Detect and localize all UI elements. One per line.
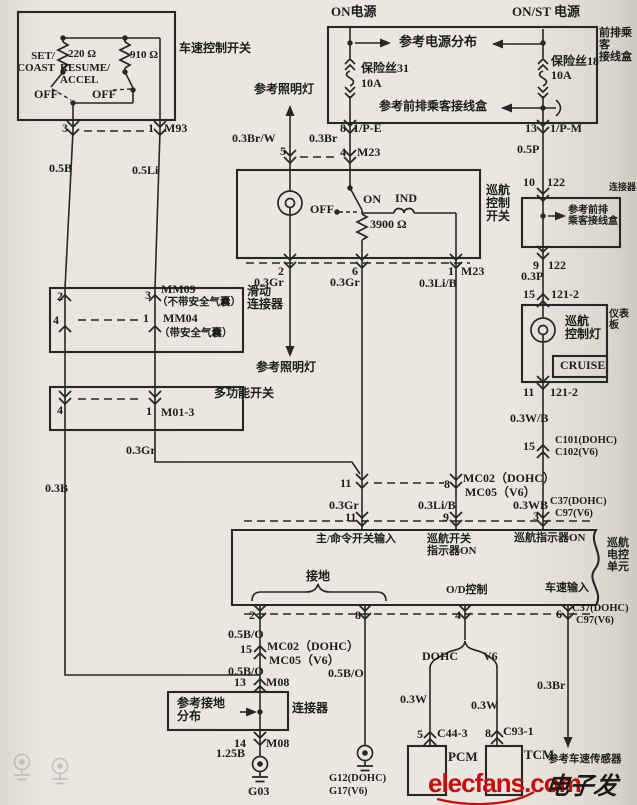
indicator-coil-icon bbox=[394, 209, 414, 214]
arrow-left-icon bbox=[501, 104, 512, 113]
pin-4: 4 bbox=[53, 314, 59, 327]
pin-1: 1 bbox=[146, 405, 152, 418]
ref-passenger-junction: 参考前排乘客接线盒 bbox=[379, 100, 487, 113]
ecu-pin-9: 9 bbox=[443, 511, 449, 524]
wire-0.3Br: 0.3Br bbox=[309, 132, 337, 145]
watermark-slogan: 电子发烧友 bbox=[540, 766, 637, 805]
junction-hook bbox=[556, 100, 561, 116]
pin-8: 8 bbox=[485, 727, 491, 740]
pin-5: 5 bbox=[417, 728, 423, 741]
connector-m01-3: M01-3 bbox=[161, 406, 194, 419]
on-label: ON bbox=[363, 193, 381, 206]
ground-g12-icon bbox=[357, 746, 373, 771]
cruise-badge-label: CRUISE bbox=[560, 359, 605, 372]
off-left-label: OFF bbox=[34, 88, 58, 101]
off-right-label: OFF bbox=[92, 88, 116, 101]
wire-0.3WB: 0.3W/B bbox=[510, 412, 548, 425]
pin-4: 4 bbox=[57, 404, 63, 417]
pin-8: 8 bbox=[444, 478, 450, 491]
ecu-pin-11: 11 bbox=[345, 511, 356, 524]
pin-4: 4 bbox=[340, 146, 346, 159]
wire-0.5Li: 0.5Li bbox=[132, 164, 158, 177]
connector-m08b: M08 bbox=[266, 737, 289, 750]
arrow-left-icon bbox=[492, 40, 503, 49]
wire-0.3Gr: 0.3Gr bbox=[126, 444, 156, 457]
ind-label: IND bbox=[395, 192, 417, 205]
resistor-910-icon bbox=[120, 42, 130, 68]
wire-0.3LiB-b: 0.3Li/B bbox=[418, 499, 456, 512]
switch-dashes bbox=[52, 89, 357, 212]
connector-m08a: M08 bbox=[266, 676, 289, 689]
cruise-lamp-icon bbox=[531, 318, 555, 342]
wire-0.3WB-b: 0.3WB bbox=[513, 499, 548, 512]
ground-g03-icon bbox=[252, 757, 268, 782]
pcm-label: PCM bbox=[448, 750, 478, 764]
pin-1: 1 bbox=[148, 122, 154, 135]
resistor-220-label: 220 Ω bbox=[68, 48, 96, 60]
junction-dots bbox=[60, 35, 545, 714]
cruise-control-switch-box bbox=[237, 170, 480, 258]
v6-label: V6 bbox=[483, 650, 498, 663]
mm04-note: （带安全气囊） bbox=[159, 328, 233, 340]
connector-1pm: 1/P-M bbox=[550, 122, 582, 135]
fuse18-amp: 10A bbox=[551, 69, 572, 82]
ref-passenger-junction-2: 参考前排 乘客接线盒 bbox=[568, 205, 618, 227]
pin-3: 3 bbox=[145, 289, 151, 302]
wire-0.3W-a: 0.3W bbox=[400, 693, 427, 706]
ref-illumination-top: 参考照明灯 bbox=[254, 83, 314, 96]
wire-0.3BrW: 0.3Br/W bbox=[232, 132, 276, 145]
connector-m23b: M23 bbox=[461, 265, 484, 278]
wire-0.3B: 0.3B bbox=[45, 482, 68, 495]
wire-1.25B: 1.25B bbox=[216, 747, 245, 760]
pin-11: 11 bbox=[523, 386, 534, 399]
resistor-3900-icon bbox=[357, 214, 367, 240]
ecu-input-indicator: 巡航指示器ON bbox=[514, 532, 586, 544]
arrow-up-icon bbox=[286, 105, 295, 116]
ground-brace bbox=[252, 584, 386, 601]
connector-c37b: C37(DOHC) bbox=[572, 603, 629, 615]
ecu-pin-6: 6 bbox=[556, 608, 562, 621]
ghost-ground-icon bbox=[14, 755, 30, 780]
multifunction-switch-label: 多功能开关 bbox=[214, 387, 274, 400]
fuse18-icon bbox=[538, 59, 548, 98]
fuse31-label: 保险丝31 bbox=[361, 62, 409, 75]
connector-c93-1: C93-1 bbox=[503, 725, 534, 738]
wire-0.3Gr-a: 0.3Gr bbox=[254, 276, 284, 289]
pin-5: 5 bbox=[280, 145, 286, 158]
connector-121-2b: 121-2 bbox=[550, 386, 578, 399]
ref-power-distribution: 参考电源分布 bbox=[399, 35, 477, 49]
connector-121-2: 121-2 bbox=[551, 288, 579, 301]
pin-3: 3 bbox=[62, 122, 68, 135]
ecu-pin-2: 2 bbox=[249, 609, 255, 622]
ref-speed-sensor: 参考车速传感器 bbox=[548, 754, 622, 766]
wire-0.5P: 0.5P bbox=[517, 143, 539, 156]
resistor-910-label: 910 Ω bbox=[130, 49, 158, 61]
connector-m93: M93 bbox=[164, 122, 187, 135]
connector-c37: C37(DOHC) bbox=[550, 496, 607, 508]
speed-switch-title: 车速控制开关 bbox=[179, 42, 251, 55]
set-coast-label: SET/ COAST bbox=[13, 50, 55, 74]
cruise-lamp-label: 巡航 控制灯 bbox=[565, 315, 601, 341]
resume-accel-label: RESUME/ ACCEL bbox=[60, 62, 110, 86]
resistor-3900-label: 3900 Ω bbox=[370, 218, 407, 231]
ecu-pin-3: 3 bbox=[533, 510, 539, 523]
on-power-label: ON电源 bbox=[331, 5, 377, 19]
arrow-right-icon bbox=[246, 708, 257, 717]
mm09-note: （不带安全气囊） bbox=[157, 297, 241, 309]
connector-label: 连接器 bbox=[609, 183, 636, 193]
wire-0.3Br-b: 0.3Br bbox=[537, 679, 565, 692]
connector-122: 122 bbox=[547, 176, 565, 189]
pin-13: 13 bbox=[234, 676, 246, 689]
fuse18-label: 保险丝18 bbox=[551, 55, 599, 68]
pin-15b: 15 bbox=[523, 440, 535, 453]
connector-mm09: MM09 bbox=[161, 283, 196, 296]
dohc-label: DOHC bbox=[422, 650, 458, 663]
connector-mc02b: MC02（DOHC） bbox=[267, 640, 359, 653]
ecu-input-main: 主/命令开关输入 bbox=[316, 533, 396, 545]
junction-box-label: 前排乘客 接线盒 bbox=[599, 27, 637, 63]
pin-15: 15 bbox=[523, 288, 535, 301]
connector-mm04: MM04 bbox=[163, 312, 198, 325]
illumination-lamp-icon bbox=[278, 191, 302, 215]
ecu-vss-label: 车速输入 bbox=[545, 582, 589, 594]
connector-mc02: MC02（DOHC） bbox=[463, 472, 555, 485]
ecu-pin-8: 8 bbox=[355, 609, 361, 622]
connector-122b: 122 bbox=[548, 259, 566, 272]
wire-0.3W-b: 0.3W bbox=[471, 699, 498, 712]
wire-0.3Gr-b: 0.3Gr bbox=[330, 276, 360, 289]
off-label: OFF bbox=[310, 203, 334, 216]
connector-box-label: 连接器 bbox=[292, 702, 328, 715]
pin-8: 8 bbox=[340, 122, 346, 135]
ghost-ground-icon bbox=[52, 759, 68, 784]
connector-c101: C101(DOHC) bbox=[555, 435, 617, 447]
arrow-down-icon bbox=[564, 737, 573, 748]
wire-0.5BO-c: 0.5B/O bbox=[328, 667, 364, 680]
connector-c44-3: C44-3 bbox=[437, 727, 468, 740]
connector-m23: M23 bbox=[357, 146, 380, 159]
pin-1: 1 bbox=[143, 312, 149, 325]
pin-10: 10 bbox=[523, 176, 535, 189]
connector-c97b: C97(V6) bbox=[576, 615, 614, 627]
pin-15: 15 bbox=[240, 643, 252, 656]
connector-c97: C97(V6) bbox=[555, 508, 593, 520]
ground-g12-label: G12(DOHC) bbox=[329, 773, 386, 785]
ground-g17-label: G17(V6) bbox=[329, 786, 368, 798]
ecu-pin-4: 4 bbox=[455, 609, 461, 622]
fuse31-icon bbox=[345, 59, 355, 98]
ref-ground-distribution: 参考接地 分布 bbox=[177, 697, 225, 723]
ecu-ground-label: 接地 bbox=[306, 570, 330, 583]
arrow-right-icon bbox=[555, 212, 566, 221]
pin-2: 2 bbox=[57, 290, 63, 303]
wire-0.3LiB: 0.3Li/B bbox=[419, 277, 457, 290]
wire-0.5BO-a: 0.5B/O bbox=[228, 628, 264, 641]
fuse31-amp: 10A bbox=[361, 77, 382, 90]
wiring-diagram-page: 车速控制开关 SET/ COAST 220 Ω RESUME/ ACCEL 91… bbox=[0, 0, 637, 805]
wire-0.5B: 0.5B bbox=[49, 162, 72, 175]
pin-13: 13 bbox=[525, 122, 537, 135]
arrow-down-icon bbox=[286, 346, 295, 357]
ref-illumination: 参考照明灯 bbox=[256, 361, 316, 374]
arrow-right-icon bbox=[380, 39, 391, 48]
ground-g03-label: G03 bbox=[248, 785, 269, 798]
wire-0.3P: 0.3P bbox=[521, 270, 543, 283]
instrument-panel-label: 仪表板 bbox=[609, 309, 637, 331]
cruise-switch-label: 巡航 控制 开关 bbox=[486, 184, 510, 224]
onst-power-label: ON/ST 电源 bbox=[512, 5, 580, 19]
ecu-unit-label: 巡航 电控 单元 bbox=[607, 537, 629, 573]
ecu-input-switch: 巡航开关 指示器ON bbox=[427, 533, 477, 557]
ecu-od-label: O/D控制 bbox=[446, 584, 488, 596]
connector-1pe: 1/P-E bbox=[353, 122, 382, 135]
pin-11: 11 bbox=[340, 477, 351, 490]
connector-c102: C102(V6) bbox=[555, 447, 598, 459]
